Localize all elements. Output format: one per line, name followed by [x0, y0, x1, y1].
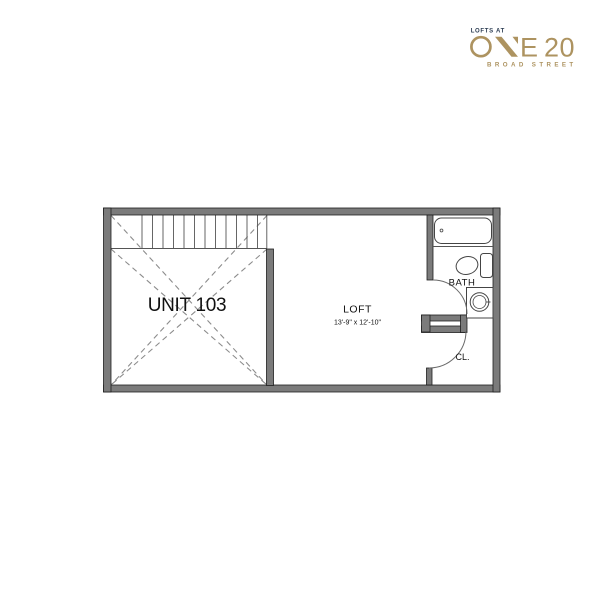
- toilet-bowl-icon: [454, 254, 480, 277]
- floor-plan-page: LOFTS AT E 20 BROAD STREET: [0, 0, 600, 600]
- wall-jamb-left: [422, 315, 431, 332]
- wall-closet-stub: [427, 368, 433, 385]
- wall-divider: [267, 249, 274, 386]
- wall-top: [104, 208, 501, 215]
- wall-right: [493, 208, 500, 392]
- loft-room-label: LOFT: [343, 304, 372, 316]
- wall-bath-left: [427, 215, 433, 280]
- wall-bottom: [104, 385, 501, 392]
- loft-dimensions-label: 13'-9" x 12'-10": [334, 320, 381, 327]
- bath-fixtures: [433, 218, 493, 318]
- closet-door-arc: [429, 331, 466, 368]
- bath-room-label: BATH: [449, 278, 476, 289]
- toilet-tank-icon: [481, 254, 493, 278]
- stairs-icon: [111, 215, 267, 249]
- closet-room-label: CL.: [455, 352, 469, 362]
- wall-left: [104, 208, 112, 392]
- unit-label: UNIT 103: [148, 295, 227, 316]
- floor-plan-drawing: UNIT 103 LOFT 13'-9" x 12'-10" BATH CL.: [0, 0, 600, 600]
